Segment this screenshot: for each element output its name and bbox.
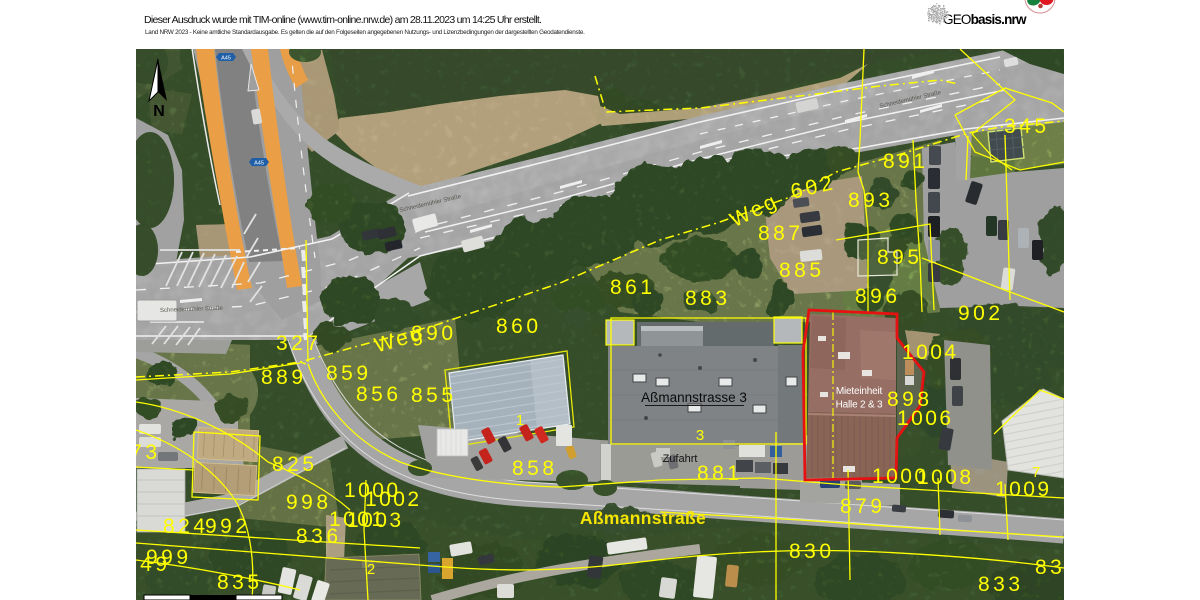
svg-text:830: 830 bbox=[789, 540, 831, 563]
svg-text:327: 327 bbox=[276, 332, 318, 355]
svg-text:825: 825 bbox=[272, 453, 314, 476]
svg-text:1: 1 bbox=[516, 412, 524, 429]
svg-text:885: 885 bbox=[779, 259, 821, 282]
svg-text:849: 849 bbox=[136, 553, 167, 576]
svg-text:873: 873 bbox=[136, 441, 157, 464]
svg-text:859: 859 bbox=[326, 362, 368, 385]
svg-text:7: 7 bbox=[1032, 464, 1040, 481]
svg-text:Zufahrt: Zufahrt bbox=[663, 453, 698, 465]
svg-text:2: 2 bbox=[367, 561, 375, 578]
svg-text:887: 887 bbox=[758, 222, 800, 245]
svg-text:891: 891 bbox=[883, 150, 925, 173]
svg-text:883: 883 bbox=[685, 287, 727, 310]
svg-text:Aßmannstrasse 3: Aßmannstrasse 3 bbox=[641, 390, 747, 405]
svg-text:Mieteinheit: Mieteinheit bbox=[836, 386, 883, 397]
svg-text:893: 893 bbox=[848, 189, 890, 212]
svg-text:3: 3 bbox=[696, 427, 704, 444]
svg-text:889: 889 bbox=[261, 366, 303, 389]
svg-text:998: 998 bbox=[286, 491, 328, 514]
svg-text:858: 858 bbox=[512, 457, 554, 480]
svg-text:860: 860 bbox=[496, 315, 538, 338]
svg-text:824: 824 bbox=[163, 515, 205, 538]
svg-text:835: 835 bbox=[217, 571, 259, 594]
svg-text:836: 836 bbox=[296, 525, 338, 548]
svg-text:902: 902 bbox=[958, 302, 1000, 325]
svg-text:345: 345 bbox=[1004, 115, 1046, 138]
svg-text:896: 896 bbox=[855, 285, 897, 308]
svg-text:881: 881 bbox=[697, 462, 739, 485]
svg-text:861: 861 bbox=[610, 276, 652, 299]
svg-text:855: 855 bbox=[411, 384, 453, 407]
svg-text:Halle 2 & 3: Halle 2 & 3 bbox=[836, 400, 883, 411]
svg-text:856: 856 bbox=[356, 383, 398, 406]
svg-text:879: 879 bbox=[840, 495, 882, 518]
svg-text:992: 992 bbox=[205, 515, 247, 538]
svg-text:833: 833 bbox=[978, 573, 1020, 596]
svg-text:N: N bbox=[153, 103, 165, 120]
svg-text:999: 999 bbox=[146, 546, 188, 569]
svg-text:Aßmannstraße: Aßmannstraße bbox=[580, 508, 706, 528]
svg-text:831: 831 bbox=[1035, 556, 1064, 579]
svg-text:895: 895 bbox=[877, 246, 919, 269]
